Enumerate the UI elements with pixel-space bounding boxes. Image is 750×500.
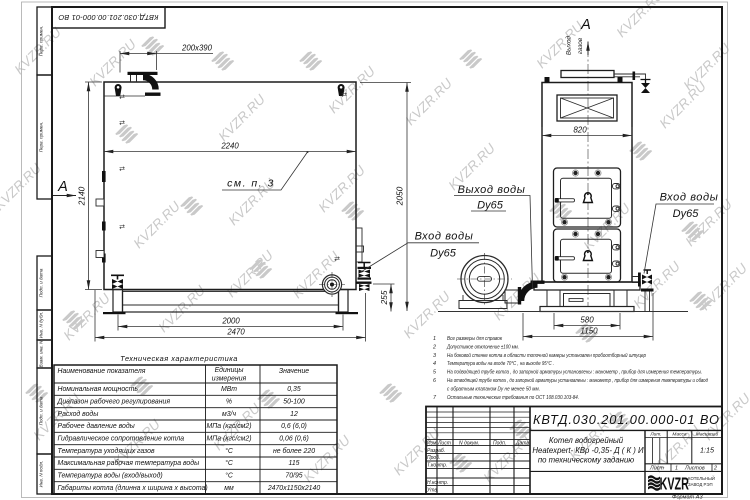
svg-text:0,6 (6,0): 0,6 (6,0) <box>281 423 307 430</box>
svg-text:Температура уходящих газов: Температура уходящих газов <box>58 447 156 455</box>
svg-text:KVZR.RU: KVZR.RU <box>131 198 184 251</box>
svg-text:Взам. инв. N: Взам. инв. N <box>39 340 44 367</box>
svg-text:2140: 2140 <box>77 186 87 206</box>
svg-text:KVZR.RU: KVZR.RU <box>87 36 140 89</box>
svg-text:70/95: 70/95 <box>285 473 302 480</box>
svg-text:КВТД.030.201.00.000-01 ВО: КВТД.030.201.00.000-01 ВО <box>58 13 158 22</box>
svg-text:Номинальная мощность: Номинальная мощность <box>58 386 139 393</box>
svg-text:⇄: ⇄ <box>341 92 347 99</box>
svg-text:Единицы: Единицы <box>215 366 244 374</box>
svg-text:KVZR.RU: KVZR.RU <box>681 40 734 93</box>
svg-text:2470х1150х2140: 2470х1150х2140 <box>267 485 321 492</box>
svg-text:255: 255 <box>379 290 389 305</box>
svg-text:Гидравлическое сопротивление к: Гидравлическое сопротивление котла <box>58 435 185 443</box>
svg-text:На боковой стенке котла в обла: На боковой стенке котла в области топочн… <box>447 352 646 359</box>
svg-text:115: 115 <box>289 460 300 467</box>
svg-text:Масштаб: Масштаб <box>696 431 719 437</box>
svg-text:0,06 (0,6): 0,06 (0,6) <box>279 436 309 443</box>
svg-text:Максимальная рабочая температу: Максимальная рабочая температура воды <box>58 459 200 467</box>
svg-text:5: 5 <box>433 370 437 376</box>
svg-text:KVZR.RU: KVZR.RU <box>491 270 544 323</box>
svg-text:КОТЕЛЬНЫЙ: КОТЕЛЬНЫЙ <box>688 476 715 481</box>
svg-text:м3/ч: м3/ч <box>222 411 236 418</box>
svg-text:На отводящей трубе котла , до: На отводящей трубе котла , до запорной а… <box>447 377 708 384</box>
svg-text:KVZR.RU: KVZR.RU <box>224 247 277 300</box>
svg-text:1:15: 1:15 <box>700 446 715 455</box>
svg-text:Температура воды (вход/выход): Температура воды (вход/выход) <box>58 472 163 480</box>
svg-text:Проб.: Проб. <box>427 455 440 461</box>
svg-text:2000: 2000 <box>221 317 240 326</box>
svg-text:6: 6 <box>433 378 436 384</box>
svg-text:газов: газов <box>577 37 584 54</box>
svg-text:Формат А3: Формат А3 <box>672 495 703 500</box>
svg-text:Инв. N подл.: Инв. N подл. <box>39 461 44 488</box>
svg-text:Допустимое отклонение ±100 мм: Допустимое отклонение ±100 мм. <box>446 344 519 350</box>
svg-text:Остальные технические требован: Остальные технические требования по ОСТ … <box>447 395 579 401</box>
svg-text:Техническая характеристика: Техническая характеристика <box>120 354 238 363</box>
svg-text:На подводящей трубе котла ,: На подводящей трубе котла , до запорной … <box>447 369 702 376</box>
svg-text:KVZR.RU: KVZR.RU <box>657 78 710 131</box>
svg-text:Листов: Листов <box>684 466 705 472</box>
svg-text:Перв. примен.: Перв. примен. <box>39 26 44 57</box>
svg-text:%: % <box>226 399 232 406</box>
svg-text:KVZR.RU: KVZR.RU <box>316 162 369 215</box>
svg-text:Дата: Дата <box>515 440 529 446</box>
svg-text:Разраб.: Разраб. <box>427 448 445 454</box>
svg-text:Dy65: Dy65 <box>477 200 504 212</box>
svg-text:1: 1 <box>433 336 436 342</box>
svg-text:0,35: 0,35 <box>287 386 301 393</box>
svg-text:⇄: ⇄ <box>119 224 125 231</box>
svg-text:Dy65: Dy65 <box>673 208 700 220</box>
svg-text:°С: °С <box>225 459 234 467</box>
svg-text:КВТД.030.201.00.000-01 ВО: КВТД.030.201.00.000-01 ВО <box>533 412 719 427</box>
svg-text:7: 7 <box>433 395 437 401</box>
svg-text:Dy65: Dy65 <box>430 248 457 260</box>
svg-text:2470: 2470 <box>226 328 245 337</box>
svg-text:3: 3 <box>433 353 436 359</box>
svg-text:МПа (кгс/см2): МПа (кгс/см2) <box>206 436 251 443</box>
svg-text:KVZR: KVZR <box>660 475 690 494</box>
svg-text:820: 820 <box>573 126 587 135</box>
svg-text:Котел водогрейный: Котел водогрейный <box>549 436 624 445</box>
svg-text:Т.контр.: Т.контр. <box>427 463 447 469</box>
svg-text:Перв. примен.: Перв. примен. <box>39 122 44 153</box>
svg-text:4: 4 <box>433 361 436 367</box>
svg-text:мм: мм <box>224 485 234 492</box>
svg-text:⇄: ⇄ <box>334 256 340 263</box>
svg-text:Утв.: Утв. <box>427 487 438 493</box>
svg-text:Лит.: Лит. <box>649 431 661 437</box>
svg-text:KVZR.RU: KVZR.RU <box>156 282 209 335</box>
svg-text:Изм.: Изм. <box>427 440 438 446</box>
svg-text:⇄: ⇄ <box>119 166 125 173</box>
svg-text:Инв. N дубл.: Инв. N дубл. <box>39 312 44 339</box>
svg-text:2: 2 <box>713 466 717 472</box>
svg-text:°С: °С <box>225 472 234 480</box>
svg-text:не более 220: не более 220 <box>273 447 315 455</box>
svg-text:Подп. и дата: Подп. и дата <box>39 268 44 297</box>
svg-text:по техническому заданию: по техническому заданию <box>538 456 634 465</box>
svg-text:KVZR.RU: KVZR.RU <box>401 288 454 341</box>
svg-text:Все размеры для справок: Все размеры для справок <box>447 336 502 342</box>
svg-text:Диапазон рабочего регулировани: Диапазон рабочего регулирования <box>57 398 171 406</box>
svg-text:А: А <box>580 17 591 33</box>
svg-text:50-100: 50-100 <box>283 399 305 406</box>
svg-text:Лист: Лист <box>437 440 451 446</box>
svg-text:Heatexpert- КВр -0,35- Д ( К ): Heatexpert- КВр -0,35- Д ( К ) И <box>532 446 644 455</box>
svg-text:Масса: Масса <box>672 431 687 437</box>
svg-text:KVZR.RU: KVZR.RU <box>326 63 379 116</box>
svg-text:Подп. и дата: Подп. и дата <box>39 396 44 425</box>
svg-text:KVZR.RU: KVZR.RU <box>403 75 456 128</box>
svg-text:МПа (кгс/см2): МПа (кгс/см2) <box>206 423 251 430</box>
svg-text:200х390: 200х390 <box>181 44 213 53</box>
svg-text:Расход воды: Расход воды <box>58 410 99 418</box>
svg-text:измерения: измерения <box>212 376 247 383</box>
svg-text:Рабочее давление воды: Рабочее давление воды <box>58 422 135 430</box>
svg-text:с обратным клапаном Dy не мен: с обратным клапаном Dy не менее 50 мм. <box>447 386 540 392</box>
svg-text:Выход: Выход <box>565 35 573 55</box>
svg-text:580: 580 <box>580 316 594 325</box>
svg-text:1150: 1150 <box>580 327 598 336</box>
svg-text:2: 2 <box>432 344 436 350</box>
svg-text:Н.контр.: Н.контр. <box>427 480 448 486</box>
svg-text:см. п. 3: см. п. 3 <box>227 178 275 190</box>
svg-text:Габариты котла (длинна х ширин: Габариты котла (длинна х ширина х высота… <box>58 484 208 492</box>
svg-text:МВт: МВт <box>221 386 237 393</box>
svg-text:12: 12 <box>290 411 298 418</box>
svg-text:°С: °С <box>225 447 234 455</box>
svg-text:Подп.: Подп. <box>493 440 506 446</box>
svg-text:2240: 2240 <box>220 141 239 150</box>
svg-text:Выход воды: Выход воды <box>458 184 526 196</box>
svg-text:KVZR.RU: KVZR.RU <box>216 91 269 144</box>
svg-text:Лист: Лист <box>649 466 664 472</box>
svg-text:Значение: Значение <box>279 368 309 375</box>
svg-text:ЗАВОД РЭП: ЗАВОД РЭП <box>688 482 713 487</box>
svg-text:N докум.: N докум. <box>459 440 479 446</box>
svg-text:А: А <box>57 179 68 195</box>
svg-text:Вход воды: Вход воды <box>415 231 474 243</box>
svg-text:⇄: ⇄ <box>119 94 125 101</box>
svg-text:1: 1 <box>675 466 678 472</box>
svg-text:2050: 2050 <box>395 186 405 206</box>
svg-text:⇄: ⇄ <box>119 120 125 127</box>
svg-text:Температура воды на входе 70°: Температура воды на входе 70°С , на выхо… <box>447 361 554 367</box>
svg-text:Наименование показателя: Наименование показателя <box>58 368 146 375</box>
svg-text:Вход воды: Вход воды <box>660 192 719 204</box>
